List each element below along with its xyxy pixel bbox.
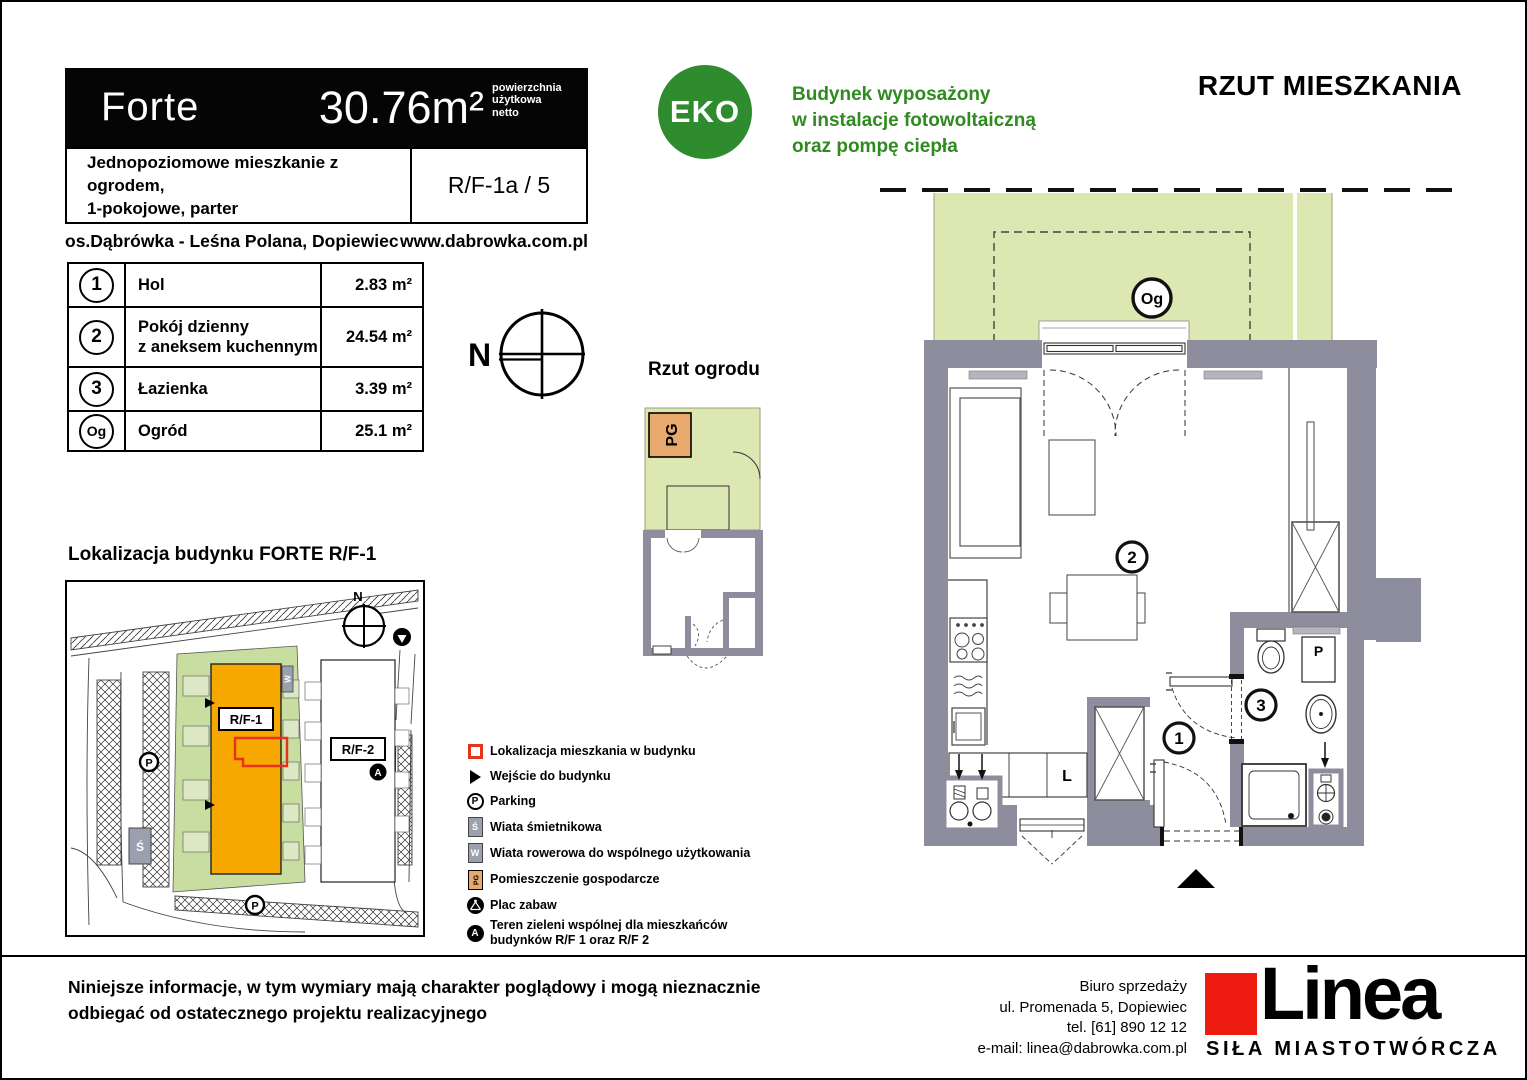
room2-badge: 2	[1117, 542, 1147, 572]
coffee-table	[1049, 440, 1095, 515]
room3-badge: 3	[1246, 690, 1276, 720]
fridge-label: L	[1062, 768, 1072, 785]
toilet-tank	[1257, 629, 1285, 641]
bike-shed-icon: W	[468, 843, 483, 863]
mini-apartment	[643, 530, 763, 668]
linea-logo-tagline: SIŁA MIASTOTWÓRCZA	[1206, 1038, 1501, 1061]
building-rf1-label: R/F-1	[230, 712, 263, 727]
page-title: RZUT MIESZKANIA	[1150, 70, 1462, 102]
legend-item: Lokalizacja mieszkania w budynku	[460, 739, 800, 764]
bathroom: P	[1242, 627, 1341, 827]
dishwasher-symbol	[954, 676, 982, 696]
map-north-label: N	[353, 589, 362, 604]
radiator	[1204, 371, 1262, 379]
compass-rose: N	[454, 302, 589, 408]
floor-plan: Og	[874, 180, 1474, 940]
building-rf1	[211, 664, 281, 874]
svg-text:2: 2	[1127, 548, 1136, 567]
main-entrance-arrow-icon	[1177, 869, 1215, 888]
entrance-door-leaf	[1154, 760, 1164, 827]
svg-text:A: A	[374, 768, 381, 779]
garden-badge: Og	[79, 414, 114, 449]
terrace-door	[1042, 340, 1187, 438]
playground-marker-icon	[393, 628, 411, 646]
mini-garden: PG	[645, 408, 760, 530]
entrance-arrow-icon	[470, 770, 481, 784]
garden-plan-title: Rzut ogrodu	[648, 359, 760, 381]
room-number-badge: 2	[79, 320, 114, 355]
legend-item: PG Pomieszczenie gospodarcze	[460, 866, 800, 893]
header-subline: os.Dąbrówka - Leśna Polana, Dopiewiec ww…	[65, 231, 588, 252]
footer-disclaimer: Niniejsze informacje, w tym wymiary mają…	[68, 974, 788, 1026]
room-number-badge: 3	[79, 372, 114, 407]
sales-office-info: Biuro sprzedaży ul. Promenada 5, Dopiewi…	[907, 977, 1187, 1059]
room1-badge: 1	[1164, 723, 1194, 753]
header-black-box: Forte 30.76m² powierzchnia użytkowa nett…	[65, 68, 588, 147]
parking-icon: P	[467, 793, 484, 810]
flat-area-value: 30.76m²	[319, 82, 484, 134]
svg-text:Ś: Ś	[136, 839, 144, 854]
eco-description: Budynek wyposażony w instalacje fotowolt…	[792, 82, 1036, 160]
legend-item: ŚWiata śmietnikowa	[460, 814, 800, 840]
flat-brochure-page: Forte 30.76m² powierzchnia użytkowa nett…	[0, 0, 1527, 1080]
garden-mini-plan: PG	[635, 394, 775, 670]
website-link: www.dabrowka.com.pl	[400, 231, 588, 252]
north-label: N	[468, 337, 491, 373]
svg-text:PG: PG	[473, 874, 480, 885]
pg-shed-icon: PG	[468, 870, 483, 890]
hall-doors	[1150, 673, 1244, 846]
closet-column	[1289, 368, 1339, 612]
table-row: Og Ogród 25.1 m²	[69, 412, 422, 450]
legend-item: A Teren zieleni wspólnej dla mieszkańców…	[460, 917, 800, 949]
project-name: Forte	[101, 85, 199, 130]
green-area-marker: A	[370, 764, 387, 781]
kitchen-window	[1017, 805, 1087, 864]
trash-shed-icon: Ś	[468, 817, 483, 837]
room-number-badge: 1	[79, 268, 114, 303]
svg-text:1: 1	[1174, 729, 1183, 748]
legend-item: WWiata rowerowa do wspólnego użytkowania	[460, 840, 800, 866]
trash-shed-marker: Ś	[129, 828, 151, 864]
table-row: 2 Pokój dziennyz aneksem kuchennym 24.54…	[69, 308, 422, 368]
shower	[1242, 764, 1306, 826]
site-map-title: Lokalizacja budynku FORTE R/F-1	[68, 544, 376, 566]
legend-item: Plac zabaw	[460, 893, 800, 917]
legend-item: PParking	[460, 789, 800, 814]
sofa	[950, 388, 1021, 558]
svg-text:P: P	[145, 758, 152, 770]
building-rf2-label: R/F-2	[342, 742, 375, 757]
room-area: 25.1 m²	[322, 412, 422, 450]
playground-icon	[467, 897, 484, 914]
flat-description: Jednopoziomowe mieszkanie z ogrodem, 1-p…	[67, 149, 412, 222]
shelf	[1293, 627, 1340, 634]
room-area: 24.54 m²	[322, 308, 422, 366]
hall-wardrobe	[1095, 707, 1144, 800]
area-note: powierzchnia użytkowa netto	[492, 82, 580, 120]
green-area-icon: A	[467, 925, 484, 942]
washer-label: P	[1314, 643, 1323, 659]
table-row: 3 Łazienka 3.39 m²	[69, 368, 422, 412]
flat-location-icon	[468, 744, 483, 759]
map-legend: Lokalizacja mieszkania w budynku Wejście…	[460, 739, 800, 949]
linea-logo-mark	[1205, 973, 1257, 1035]
legend-item: Wejście do budynku	[460, 764, 800, 789]
room-area: 2.83 m²	[322, 264, 422, 306]
kitchen-sink	[952, 708, 985, 745]
pg-label: PG	[664, 423, 681, 446]
dining-set	[1050, 575, 1145, 640]
bike-shed-label: W	[284, 675, 293, 683]
svg-text:3: 3	[1256, 696, 1265, 715]
toilet-bowl	[1258, 641, 1284, 673]
room-area: 3.39 m²	[322, 368, 422, 410]
bathroom-shaft	[1311, 771, 1341, 827]
svg-text:P: P	[251, 901, 258, 913]
linea-logo-text: Linea	[1260, 954, 1438, 1034]
bathroom-door-leaf	[1170, 677, 1232, 686]
room-table: 1 Hol 2.83 m² 2 Pokój dziennyz aneksem k…	[67, 262, 424, 452]
radiator	[969, 371, 1027, 379]
parking-marker: P	[246, 896, 264, 914]
garden-label: Og	[1141, 291, 1163, 308]
unit-code: R/F-1a / 5	[412, 149, 586, 222]
header-description-box: Jednopoziomowe mieszkanie z ogrodem, 1-p…	[65, 147, 588, 224]
parking-marker: P	[140, 753, 158, 771]
table-row: 1 Hol 2.83 m²	[69, 264, 422, 308]
garden-area: Og	[934, 193, 1332, 342]
site-map: R/F-1 W R/F-2 N P	[65, 580, 425, 937]
eko-badge: EKO	[658, 65, 752, 159]
estate-name: os.Dąbrówka - Leśna Polana, Dopiewiec	[65, 231, 399, 252]
